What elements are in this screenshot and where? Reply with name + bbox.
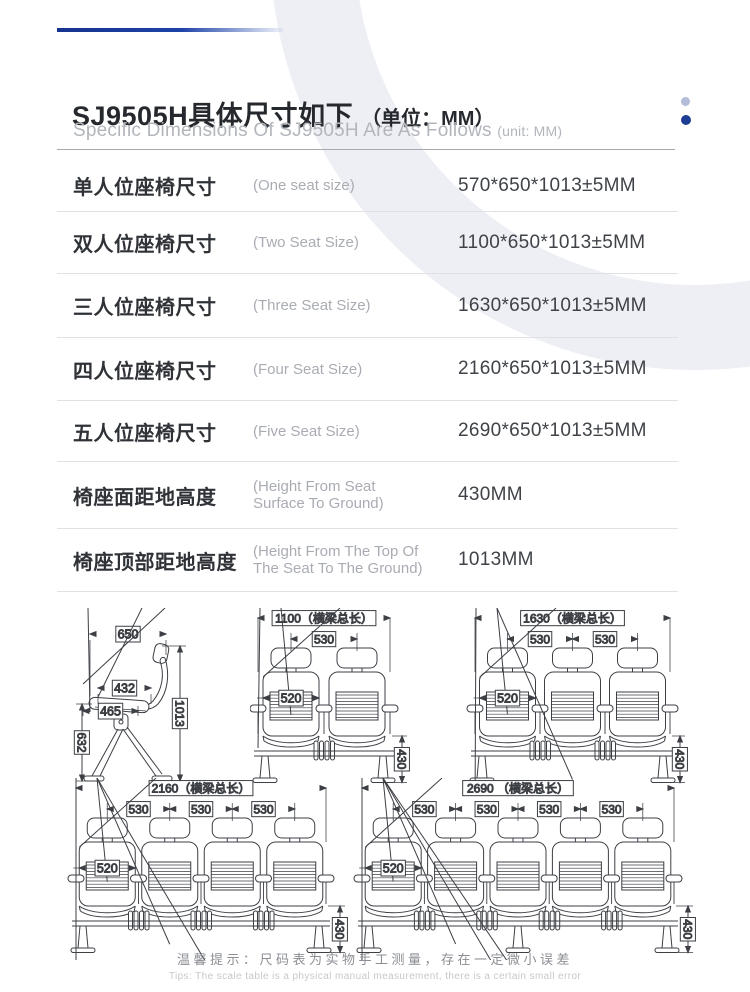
svg-text:530: 530: [595, 632, 615, 646]
table-row: 三人位座椅尺寸(Three Seat Size)1630*650*1013±5M…: [57, 274, 678, 338]
table-row: 双人位座椅尺寸(Two Seat Size)1100*650*1013±5MM: [57, 212, 678, 274]
row-label-cn: 椅座顶部距地高度: [73, 546, 253, 575]
svg-text:520: 520: [497, 692, 518, 706]
row-label-en: (Four Seat Size): [253, 361, 423, 378]
svg-text:530: 530: [602, 802, 622, 816]
accent-line: [57, 28, 283, 32]
row-value: 430MM: [458, 484, 678, 506]
row-label-cn: 五人位座椅尺寸: [73, 417, 253, 446]
row-label-cn: 三人位座椅尺寸: [73, 291, 253, 320]
svg-text:530: 530: [128, 802, 148, 816]
table-row: 椅座顶部距地高度(Height From The Top Of The Seat…: [57, 529, 678, 592]
footer: 温馨提示：尺码表为实物手工测量，存在一定微小误差 Tips: The scale…: [0, 951, 750, 983]
row-value: 1100*650*1013±5MM: [458, 232, 678, 254]
svg-text:1100（横梁总长）: 1100（横梁总长）: [275, 610, 373, 625]
row-label-en: (Height From Seat Surface To Ground): [253, 478, 423, 512]
diagram-three-seat-front-view: 1630（横梁总长）530530520430: [466, 608, 688, 795]
table-row: 五人位座椅尺寸(Five Seat Size)2690*650*1013±5MM: [57, 401, 678, 462]
header-divider: [57, 149, 675, 150]
svg-text:432: 432: [114, 682, 135, 696]
diagram-five-seat-front-view: 2690 （横梁总长）530530530530520430: [352, 778, 702, 965]
svg-text:632: 632: [75, 732, 89, 752]
svg-text:520: 520: [383, 862, 404, 876]
spec-table: 单人位座椅尺寸(One seat size)570*650*1013±5MM双人…: [57, 160, 678, 592]
table-row: 四人位座椅尺寸(Four Seat Size)2160*650*1013±5MM: [57, 338, 678, 401]
row-label-cn: 双人位座椅尺寸: [73, 228, 253, 257]
row-label-en: (One seat size): [253, 177, 423, 194]
row-label-cn: 四人位座椅尺寸: [73, 355, 253, 384]
page-subtitle: Specific Dimensions Of SJ9505H Are As Fo…: [73, 120, 562, 142]
svg-text:430: 430: [681, 919, 695, 939]
svg-text:530: 530: [477, 802, 497, 816]
row-value: 2160*650*1013±5MM: [458, 358, 678, 380]
row-value: 570*650*1013±5MM: [458, 175, 678, 197]
svg-text:2690 （横梁总长）: 2690 （横梁总长）: [467, 780, 569, 795]
svg-text:530: 530: [191, 802, 211, 816]
decor-dot-light: [681, 97, 690, 106]
row-label-en: (Three Seat Size): [253, 297, 423, 314]
row-label-cn: 单人位座椅尺寸: [73, 171, 253, 200]
svg-text:530: 530: [253, 802, 273, 816]
diagram-two-seat-front-view: 1100（横梁总长）530520430: [250, 608, 415, 795]
diagram-one-seat-side-view: 6504324651013632: [62, 608, 202, 793]
row-value: 1630*650*1013±5MM: [458, 295, 678, 317]
row-label-en: (Five Seat Size): [253, 423, 423, 440]
svg-text:1630（横梁总长）: 1630（横梁总长）: [523, 610, 622, 625]
svg-text:530: 530: [539, 802, 559, 816]
table-row: 单人位座椅尺寸(One seat size)570*650*1013±5MM: [57, 160, 678, 212]
svg-text:430: 430: [673, 749, 687, 769]
page-subtitle-unit: (unit: MM): [497, 123, 562, 139]
svg-text:2160（横梁总长）: 2160（横梁总长）: [152, 780, 251, 795]
row-label-en: (Height From The Top Of The Seat To The …: [253, 543, 423, 577]
table-row: 椅座面距地高度(Height From Seat Surface To Grou…: [57, 462, 678, 529]
svg-text:430: 430: [333, 919, 347, 939]
row-label-cn: 椅座面距地高度: [73, 481, 253, 510]
svg-text:1013: 1013: [173, 700, 187, 727]
svg-text:530: 530: [314, 632, 334, 646]
svg-text:430: 430: [395, 749, 409, 769]
diagram-four-seat-front-view: 2160（横梁总长）530530530520430: [66, 778, 352, 965]
svg-text:465: 465: [100, 705, 121, 719]
svg-text:530: 530: [414, 802, 434, 816]
svg-text:650: 650: [118, 628, 139, 642]
svg-text:520: 520: [97, 862, 118, 876]
svg-text:530: 530: [530, 632, 550, 646]
row-value: 2690*650*1013±5MM: [458, 420, 678, 442]
page-subtitle-en: Specific Dimensions Of SJ9505H Are As Fo…: [73, 120, 492, 141]
row-label-en: (Two Seat Size): [253, 234, 423, 251]
row-value: 1013MM: [458, 549, 678, 571]
svg-text:520: 520: [281, 692, 302, 706]
footer-tip-cn: 温馨提示：尺码表为实物手工测量，存在一定微小误差: [0, 951, 750, 969]
decor-dot-dark: [681, 115, 691, 125]
footer-tip-en: Tips: The scale table is a physical manu…: [0, 970, 750, 983]
